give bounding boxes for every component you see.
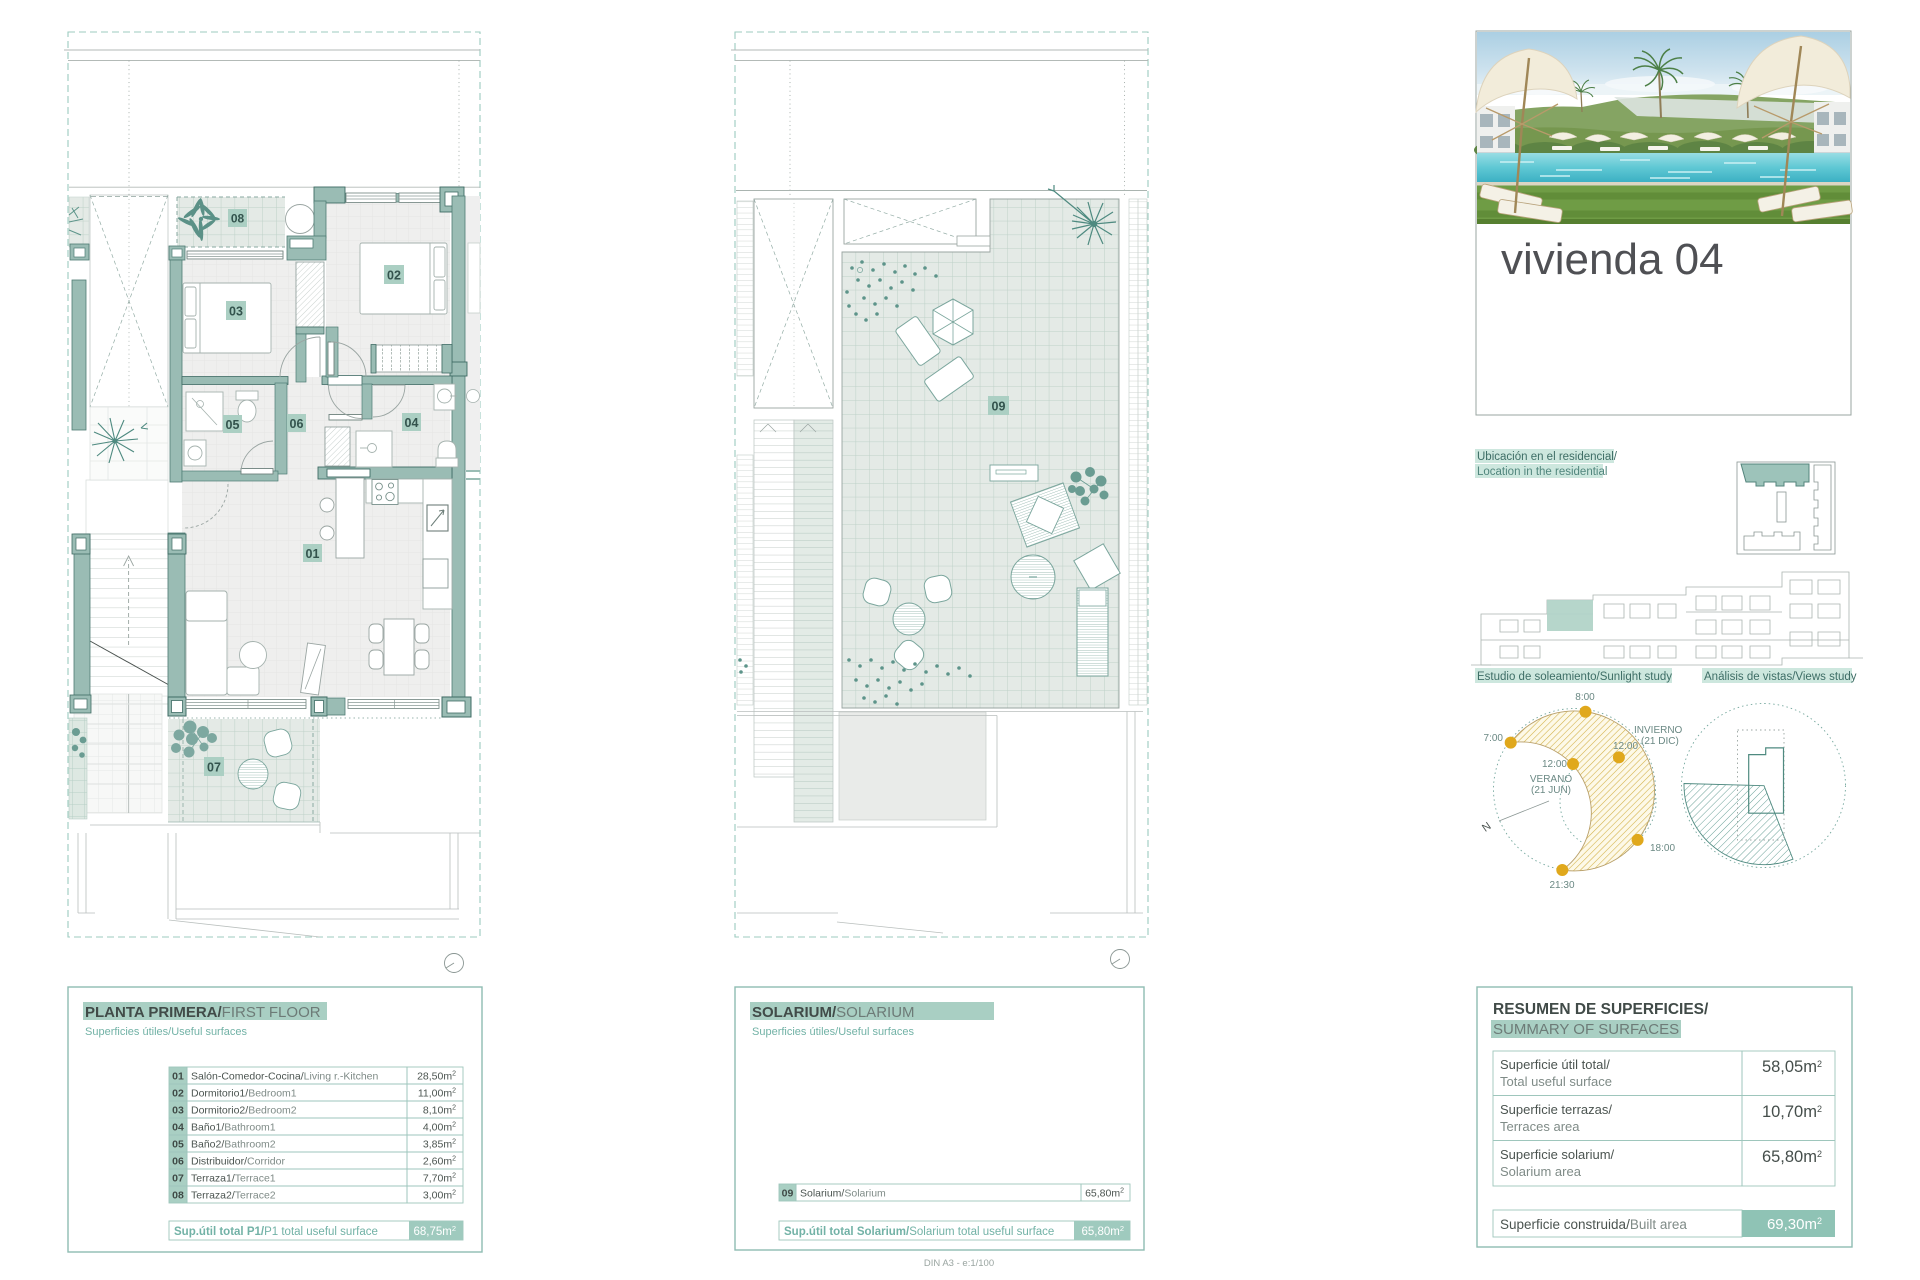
svg-text:69,30m2: 69,30m2	[1767, 1216, 1822, 1233]
svg-text:Superficies útiles/Useful surf: Superficies útiles/Useful surfaces	[85, 1026, 248, 1038]
svg-text:8,10m2: 8,10m2	[423, 1105, 456, 1117]
svg-text:(21 DIC): (21 DIC)	[1641, 736, 1679, 747]
svg-text:28,50m2: 28,50m2	[417, 1071, 456, 1083]
svg-text:09: 09	[992, 400, 1006, 414]
svg-text:VERANO: VERANO	[1530, 774, 1572, 785]
svg-text:Terraza2/Terrace2: Terraza2/Terrace2	[191, 1190, 276, 1202]
svg-text:65,80m2: 65,80m2	[1762, 1148, 1822, 1166]
svg-text:Total useful surface: Total useful surface	[1500, 1074, 1612, 1089]
svg-text:DIN A3 - e:1/100: DIN A3 - e:1/100	[924, 1258, 994, 1269]
svg-text:03: 03	[229, 305, 243, 319]
svg-text:Solarium area: Solarium area	[1500, 1164, 1582, 1179]
svg-text:03: 03	[172, 1105, 184, 1117]
svg-text:7,70m2: 7,70m2	[423, 1173, 456, 1185]
svg-text:Terraces area: Terraces area	[1500, 1119, 1580, 1134]
svg-text:Distribuidor/Corridor: Distribuidor/Corridor	[191, 1156, 285, 1168]
svg-text:21:30: 21:30	[1549, 880, 1574, 891]
svg-text:Solarium/Solarium: Solarium/Solarium	[800, 1188, 886, 1200]
svg-text:01: 01	[306, 547, 320, 561]
svg-text:SUMMARY OF SURFACES: SUMMARY OF SURFACES	[1493, 1021, 1679, 1038]
svg-text:02: 02	[387, 269, 401, 283]
svg-text:12:00: 12:00	[1613, 741, 1638, 752]
svg-text:11,00m2: 11,00m2	[418, 1088, 456, 1100]
svg-text:58,05m2: 58,05m2	[1762, 1058, 1822, 1076]
svg-text:06: 06	[172, 1156, 184, 1168]
svg-text:02: 02	[172, 1088, 184, 1100]
svg-text:Superficies útiles/Useful surf: Superficies útiles/Useful surfaces	[752, 1026, 915, 1038]
svg-text:Análisis de vistas/Views study: Análisis de vistas/Views study	[1704, 671, 1857, 683]
svg-text:3,85m2: 3,85m2	[423, 1139, 456, 1151]
svg-text:06: 06	[290, 417, 304, 431]
svg-text:Baño1/Bathroom1: Baño1/Bathroom1	[191, 1122, 276, 1134]
svg-text:07: 07	[172, 1173, 184, 1185]
svg-text:09: 09	[782, 1188, 794, 1200]
svg-text:SOLARIUM/SOLARIUM: SOLARIUM/SOLARIUM	[752, 1004, 915, 1021]
svg-text:Superficie útil total/: Superficie útil total/	[1500, 1057, 1610, 1072]
svg-text:4,00m2: 4,00m2	[423, 1122, 456, 1134]
svg-text:08: 08	[172, 1190, 184, 1202]
svg-text:07: 07	[207, 761, 221, 775]
svg-text:7:00: 7:00	[1484, 733, 1504, 744]
svg-text:12:00: 12:00	[1542, 759, 1567, 770]
svg-text:Sup.útil total P1/P1 total use: Sup.útil total P1/P1 total useful surfac…	[174, 1226, 378, 1238]
svg-text:Dormitorio1/Bedroom1: Dormitorio1/Bedroom1	[191, 1088, 297, 1100]
svg-text:2,60m2: 2,60m2	[423, 1156, 456, 1168]
svg-text:Location in the residential: Location in the residential	[1477, 466, 1607, 478]
svg-text:Superficie terrazas/: Superficie terrazas/	[1500, 1102, 1612, 1117]
svg-text:65,80m2: 65,80m2	[1085, 1188, 1124, 1200]
svg-text:Salón-Comedor-Cocina/Living r.: Salón-Comedor-Cocina/Living r.-Kitchen	[191, 1071, 379, 1083]
svg-text:RESUMEN DE SUPERFICIES/: RESUMEN DE SUPERFICIES/	[1493, 1001, 1709, 1018]
svg-text:Superficie construida/Built ar: Superficie construida/Built area	[1500, 1217, 1687, 1232]
svg-text:8:00: 8:00	[1575, 692, 1595, 703]
svg-text:05: 05	[226, 418, 240, 432]
svg-text:05: 05	[172, 1139, 184, 1151]
svg-text:INVIERNO: INVIERNO	[1634, 725, 1683, 736]
svg-text:04: 04	[405, 416, 419, 430]
svg-text:10,70m2: 10,70m2	[1762, 1103, 1822, 1121]
svg-text:vivienda 04: vivienda 04	[1501, 235, 1724, 284]
svg-text:Superficie solarium/: Superficie solarium/	[1500, 1147, 1615, 1162]
svg-text:PLANTA PRIMERA/FIRST FLOOR: PLANTA PRIMERA/FIRST FLOOR	[85, 1004, 321, 1021]
svg-text:01: 01	[172, 1071, 184, 1083]
svg-text:(21 JUN): (21 JUN)	[1531, 785, 1571, 796]
svg-text:Ubicación en el residencial/: Ubicación en el residencial/	[1477, 451, 1618, 463]
svg-text:Baño2/Bathroom2: Baño2/Bathroom2	[191, 1139, 276, 1151]
svg-text:65,80m2: 65,80m2	[1081, 1224, 1124, 1238]
svg-text:Sup.útil total Solarium/Solari: Sup.útil total Solarium/Solarium total u…	[784, 1226, 1054, 1238]
svg-text:04: 04	[172, 1122, 184, 1134]
svg-text:Dormitorio2/Bedroom2: Dormitorio2/Bedroom2	[191, 1105, 297, 1117]
svg-text:Estudio de soleamiento/Sunligh: Estudio de soleamiento/Sunlight study	[1477, 671, 1672, 683]
svg-text:68,75m2: 68,75m2	[413, 1224, 456, 1238]
svg-text:3,00m2: 3,00m2	[423, 1190, 456, 1202]
svg-text:Terraza1/Terrace1: Terraza1/Terrace1	[191, 1173, 276, 1185]
svg-text:18:00: 18:00	[1650, 843, 1675, 854]
svg-text:08: 08	[231, 212, 245, 226]
